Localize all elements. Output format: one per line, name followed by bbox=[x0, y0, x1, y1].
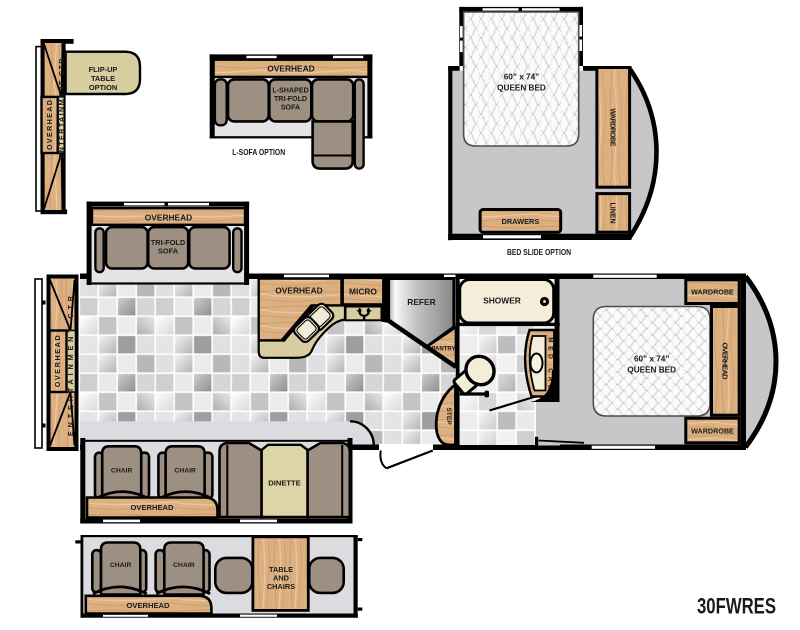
svg-text:SOFA: SOFA bbox=[281, 104, 300, 112]
svg-text:ENTERTAINMENT CTR: ENTERTAINMENT CTR bbox=[66, 295, 75, 436]
svg-text:60” x 74”: 60” x 74” bbox=[504, 73, 540, 82]
svg-text:SHOWER: SHOWER bbox=[483, 296, 521, 306]
svg-text:LINEN: LINEN bbox=[609, 203, 616, 224]
svg-text:OVERHEAD: OVERHEAD bbox=[45, 100, 54, 150]
svg-text:FLIP-UP: FLIP-UP bbox=[89, 65, 118, 74]
svg-text:OVERHEAD: OVERHEAD bbox=[721, 343, 730, 381]
svg-text:CHAIR: CHAIR bbox=[110, 562, 132, 569]
svg-text:OVERHEAD: OVERHEAD bbox=[145, 213, 192, 223]
svg-text:60” x 74”: 60” x 74” bbox=[634, 355, 670, 364]
svg-text:DINETTE: DINETTE bbox=[268, 479, 301, 488]
svg-text:WARDROBE: WARDROBE bbox=[691, 288, 734, 297]
svg-text:TRI-FOLD: TRI-FOLD bbox=[274, 95, 307, 103]
svg-text:30FWRES: 30FWRES bbox=[697, 594, 776, 619]
svg-text:OVERHEAD: OVERHEAD bbox=[267, 64, 314, 74]
svg-text:SOFA: SOFA bbox=[158, 247, 179, 256]
svg-text:ENTERTAINMENT CTR: ENTERTAINMENT CTR bbox=[57, 58, 66, 159]
svg-text:WARDROBE: WARDROBE bbox=[609, 108, 616, 146]
svg-text:WARDROBE: WARDROBE bbox=[691, 427, 734, 436]
svg-text:STEP: STEP bbox=[445, 407, 452, 425]
svg-text:CHAIR: CHAIR bbox=[111, 468, 133, 475]
svg-text:TABLE: TABLE bbox=[91, 74, 115, 83]
svg-text:BED SLIDE OPTION: BED SLIDE OPTION bbox=[507, 248, 571, 257]
svg-text:OVERHEAD: OVERHEAD bbox=[130, 503, 174, 512]
svg-text:QUEEN BED: QUEEN BED bbox=[627, 366, 676, 375]
svg-text:CHAIRS: CHAIRS bbox=[267, 582, 295, 591]
svg-text:CHAIR: CHAIR bbox=[173, 562, 195, 569]
svg-text:MICRO: MICRO bbox=[349, 287, 377, 297]
svg-text:CHAIR: CHAIR bbox=[174, 468, 196, 475]
svg-text:DRAWERS: DRAWERS bbox=[502, 217, 540, 226]
svg-text:OVERHEAD: OVERHEAD bbox=[126, 601, 170, 610]
svg-text:L-SOFA OPTION: L-SOFA OPTION bbox=[232, 148, 285, 157]
svg-text:OPTION: OPTION bbox=[89, 83, 117, 92]
svg-text:OVERHEAD: OVERHEAD bbox=[53, 335, 62, 387]
svg-text:REFER: REFER bbox=[407, 297, 435, 307]
svg-text:QUEEN BED: QUEEN BED bbox=[497, 84, 546, 93]
svg-text:L-SHAPED: L-SHAPED bbox=[272, 87, 308, 95]
svg-text:OVERHEAD: OVERHEAD bbox=[275, 286, 322, 296]
